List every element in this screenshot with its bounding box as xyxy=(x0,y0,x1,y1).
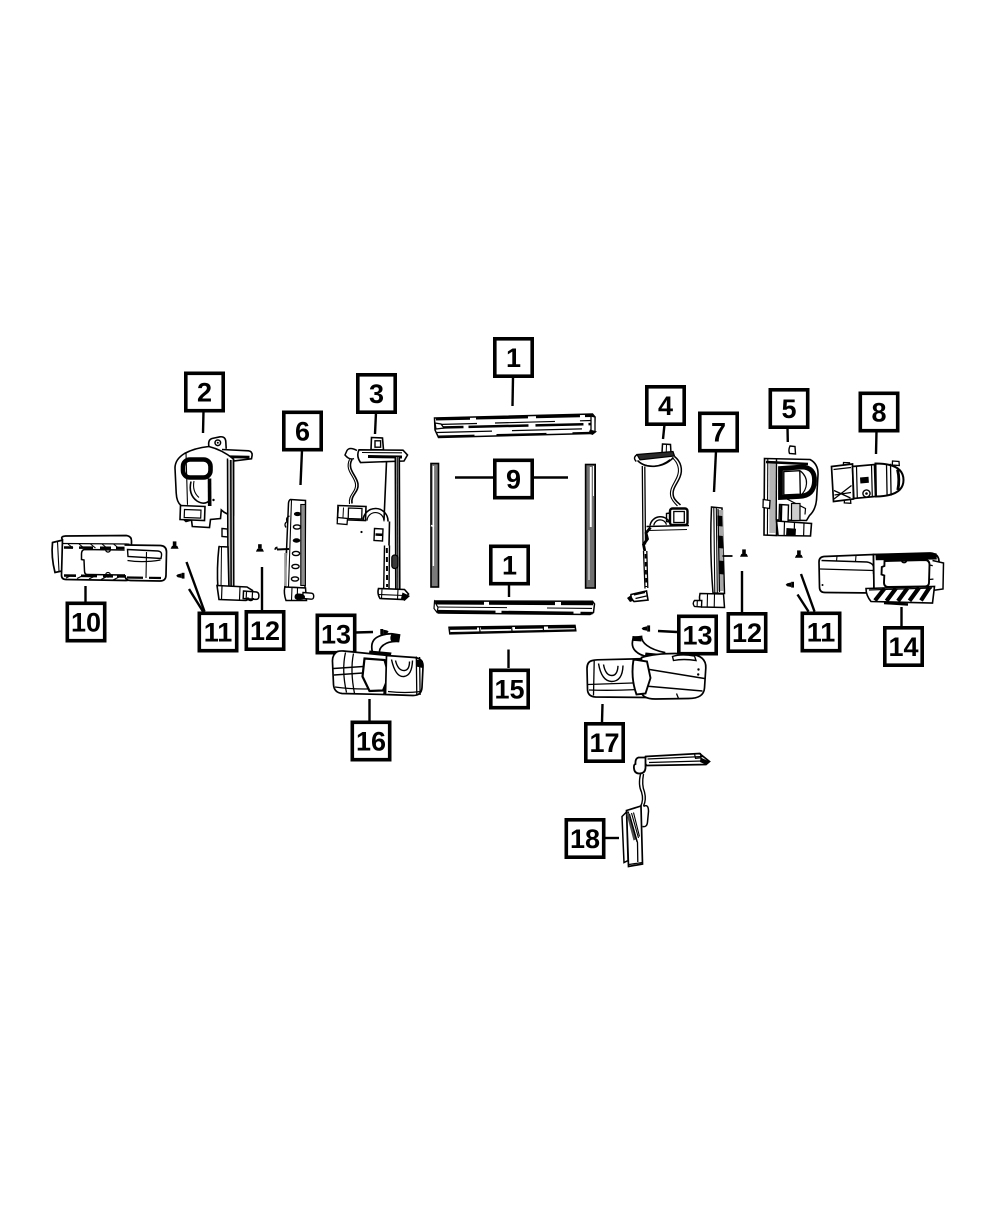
svg-text:12: 12 xyxy=(732,618,762,648)
svg-text:18: 18 xyxy=(570,824,600,854)
svg-text:17: 17 xyxy=(589,728,619,758)
svg-text:9: 9 xyxy=(506,464,521,494)
svg-text:7: 7 xyxy=(711,417,726,447)
svg-text:6: 6 xyxy=(295,416,310,446)
svg-text:4: 4 xyxy=(658,391,673,421)
svg-text:10: 10 xyxy=(71,607,101,637)
svg-text:11: 11 xyxy=(807,617,836,647)
svg-text:14: 14 xyxy=(888,632,918,662)
svg-text:2: 2 xyxy=(197,377,212,407)
svg-text:1: 1 xyxy=(506,343,521,373)
svg-text:12: 12 xyxy=(250,616,280,646)
svg-text:11: 11 xyxy=(204,617,233,647)
svg-text:3: 3 xyxy=(369,379,384,409)
svg-text:16: 16 xyxy=(356,726,386,756)
svg-text:8: 8 xyxy=(871,397,886,427)
svg-text:13: 13 xyxy=(682,620,712,650)
svg-text:13: 13 xyxy=(321,619,351,649)
svg-text:1: 1 xyxy=(502,550,517,580)
svg-text:5: 5 xyxy=(781,394,796,424)
svg-text:15: 15 xyxy=(494,674,524,704)
